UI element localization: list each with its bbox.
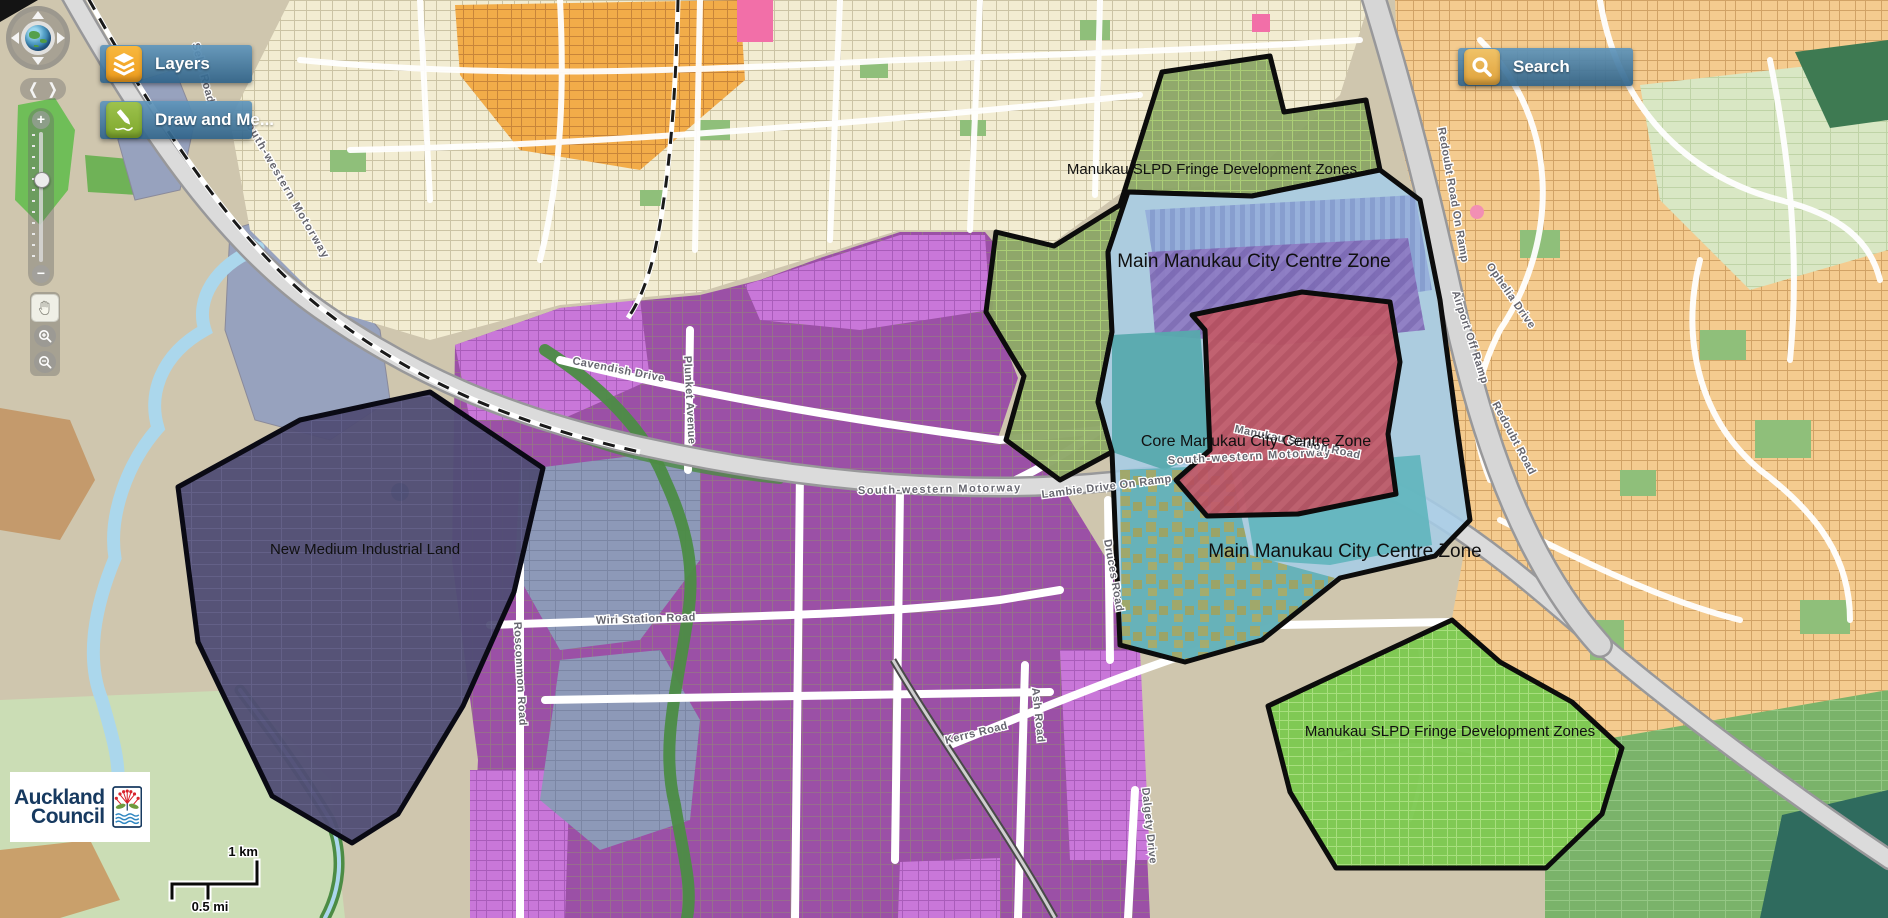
pan-tool-button[interactable]: [32, 295, 58, 321]
draw-pencil-icon: [106, 102, 142, 138]
auckland-council-logo: Auckland Council: [10, 772, 150, 842]
pan-right-icon[interactable]: [57, 32, 65, 44]
zone-label: Core Manukau City Centre Zone: [1141, 433, 1371, 450]
zoom-in-slider-button[interactable]: +: [32, 111, 50, 129]
zone-label: Manukau SLPD Fringe Development Zones: [1305, 723, 1595, 740]
zone-core-city-centre[interactable]: [1176, 292, 1400, 516]
previous-next-extent: ❬ ❭: [20, 78, 66, 100]
layers-button-label: Layers: [142, 54, 226, 74]
zone-label: Manukau SLPD Fringe Development Zones: [1067, 161, 1357, 178]
zoom-in-tool-button[interactable]: [34, 325, 56, 347]
map-navigation-control: ❬ ❭ + −: [6, 6, 80, 376]
zoom-out-tool-button[interactable]: [34, 351, 56, 373]
zoom-slider-track[interactable]: [39, 132, 43, 262]
magnifier-plus-icon: [37, 328, 53, 344]
layers-icon: [106, 46, 142, 82]
zoom-out-slider-button[interactable]: −: [32, 265, 50, 283]
globe-icon: [25, 25, 51, 51]
zoom-slider-ticks: [32, 134, 35, 260]
zone-label: New Medium Industrial Land: [270, 541, 460, 558]
map-tools: [30, 292, 60, 376]
map-canvas[interactable]: South-western Motorway South-western Mot…: [0, 0, 1888, 918]
zoom-slider[interactable]: + −: [28, 108, 54, 286]
layers-button[interactable]: Layers: [100, 45, 252, 83]
search-icon: [1464, 49, 1500, 85]
pohutukawa-emblem-icon: [112, 778, 142, 836]
zoom-slider-handle[interactable]: [34, 172, 50, 188]
logo-line2: Council: [14, 807, 105, 826]
map-viewer: South-western Motorway South-western Mot…: [0, 0, 1888, 918]
pan-up-icon[interactable]: [32, 11, 44, 19]
zone-label: Main Manukau City Centre Zone: [1208, 541, 1482, 562]
search-button-label: Search: [1500, 57, 1586, 77]
hand-icon: [36, 299, 54, 317]
pan-down-icon[interactable]: [32, 57, 44, 65]
search-button[interactable]: Search: [1458, 48, 1633, 86]
previous-extent-icon[interactable]: ❬: [27, 80, 40, 98]
draw-and-measure-button[interactable]: Draw and Me...: [100, 101, 252, 139]
scale-km-label: 1 km: [228, 844, 258, 859]
draw-and-measure-button-label: Draw and Me...: [142, 110, 290, 130]
magnifier-minus-icon: [37, 354, 53, 370]
pan-left-icon[interactable]: [11, 32, 19, 44]
scale-mi-label: 0.5 mi: [192, 899, 229, 914]
next-extent-icon[interactable]: ❭: [46, 80, 59, 98]
zone-label: Main Manukau City Centre Zone: [1117, 251, 1391, 272]
full-extent-button[interactable]: [21, 21, 55, 55]
logo-text: Auckland Council: [14, 788, 105, 827]
pan-compass[interactable]: [6, 6, 70, 70]
